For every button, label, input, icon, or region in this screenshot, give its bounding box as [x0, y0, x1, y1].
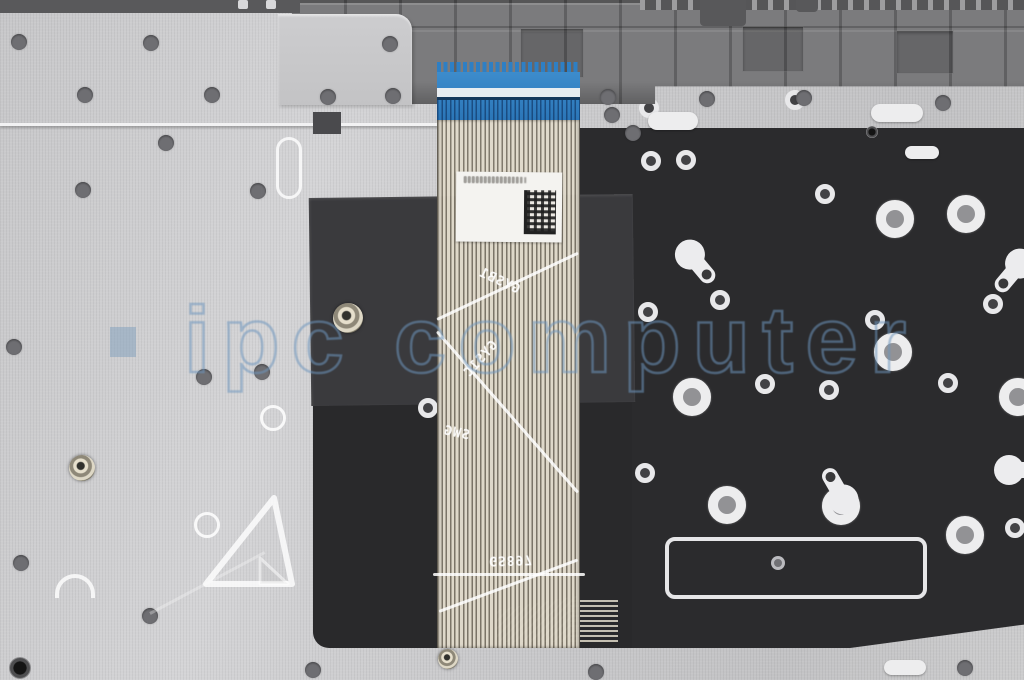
keyboard-membrane: [578, 128, 1024, 648]
keyboard-ribbon-cable: GYSB1GYS1CSWGGS897: [437, 62, 580, 648]
photo-canvas: GYSB1GYS1CSWGGS897 ipc computer: [0, 0, 1024, 680]
datamatrix-code-icon: [524, 190, 556, 234]
chassis-teeth-row: [640, 0, 1024, 10]
connector-conductors: [437, 100, 580, 120]
top-edge-bar: [0, 0, 300, 13]
cable-crease-line: [433, 573, 585, 576]
label-text-line: [464, 177, 512, 183]
edge-stud: [266, 0, 276, 9]
cable-print-text: GS897: [489, 551, 534, 568]
edge-stud: [238, 0, 248, 9]
tape-top-notch: [313, 112, 341, 134]
connector-white-stripe: [437, 88, 580, 97]
cable-label: [456, 172, 563, 243]
plate-corner-tab: [278, 14, 412, 105]
plate-seam-line: [0, 123, 440, 126]
